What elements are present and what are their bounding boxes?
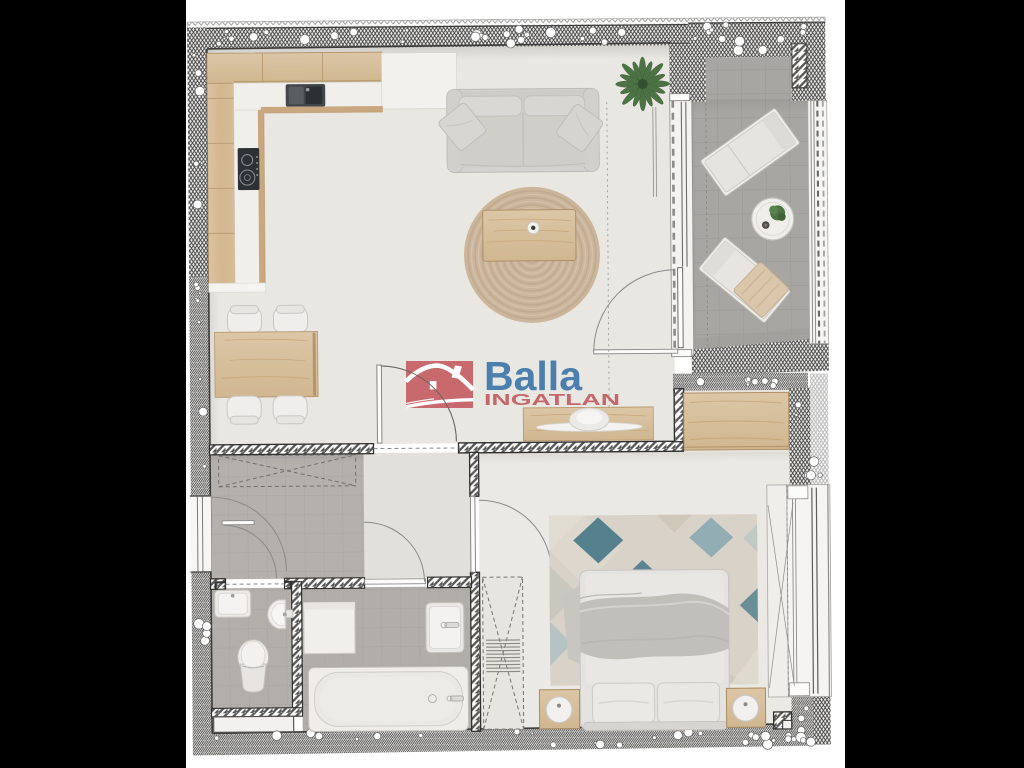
- svg-text:INGATLAN: INGATLAN: [484, 392, 620, 409]
